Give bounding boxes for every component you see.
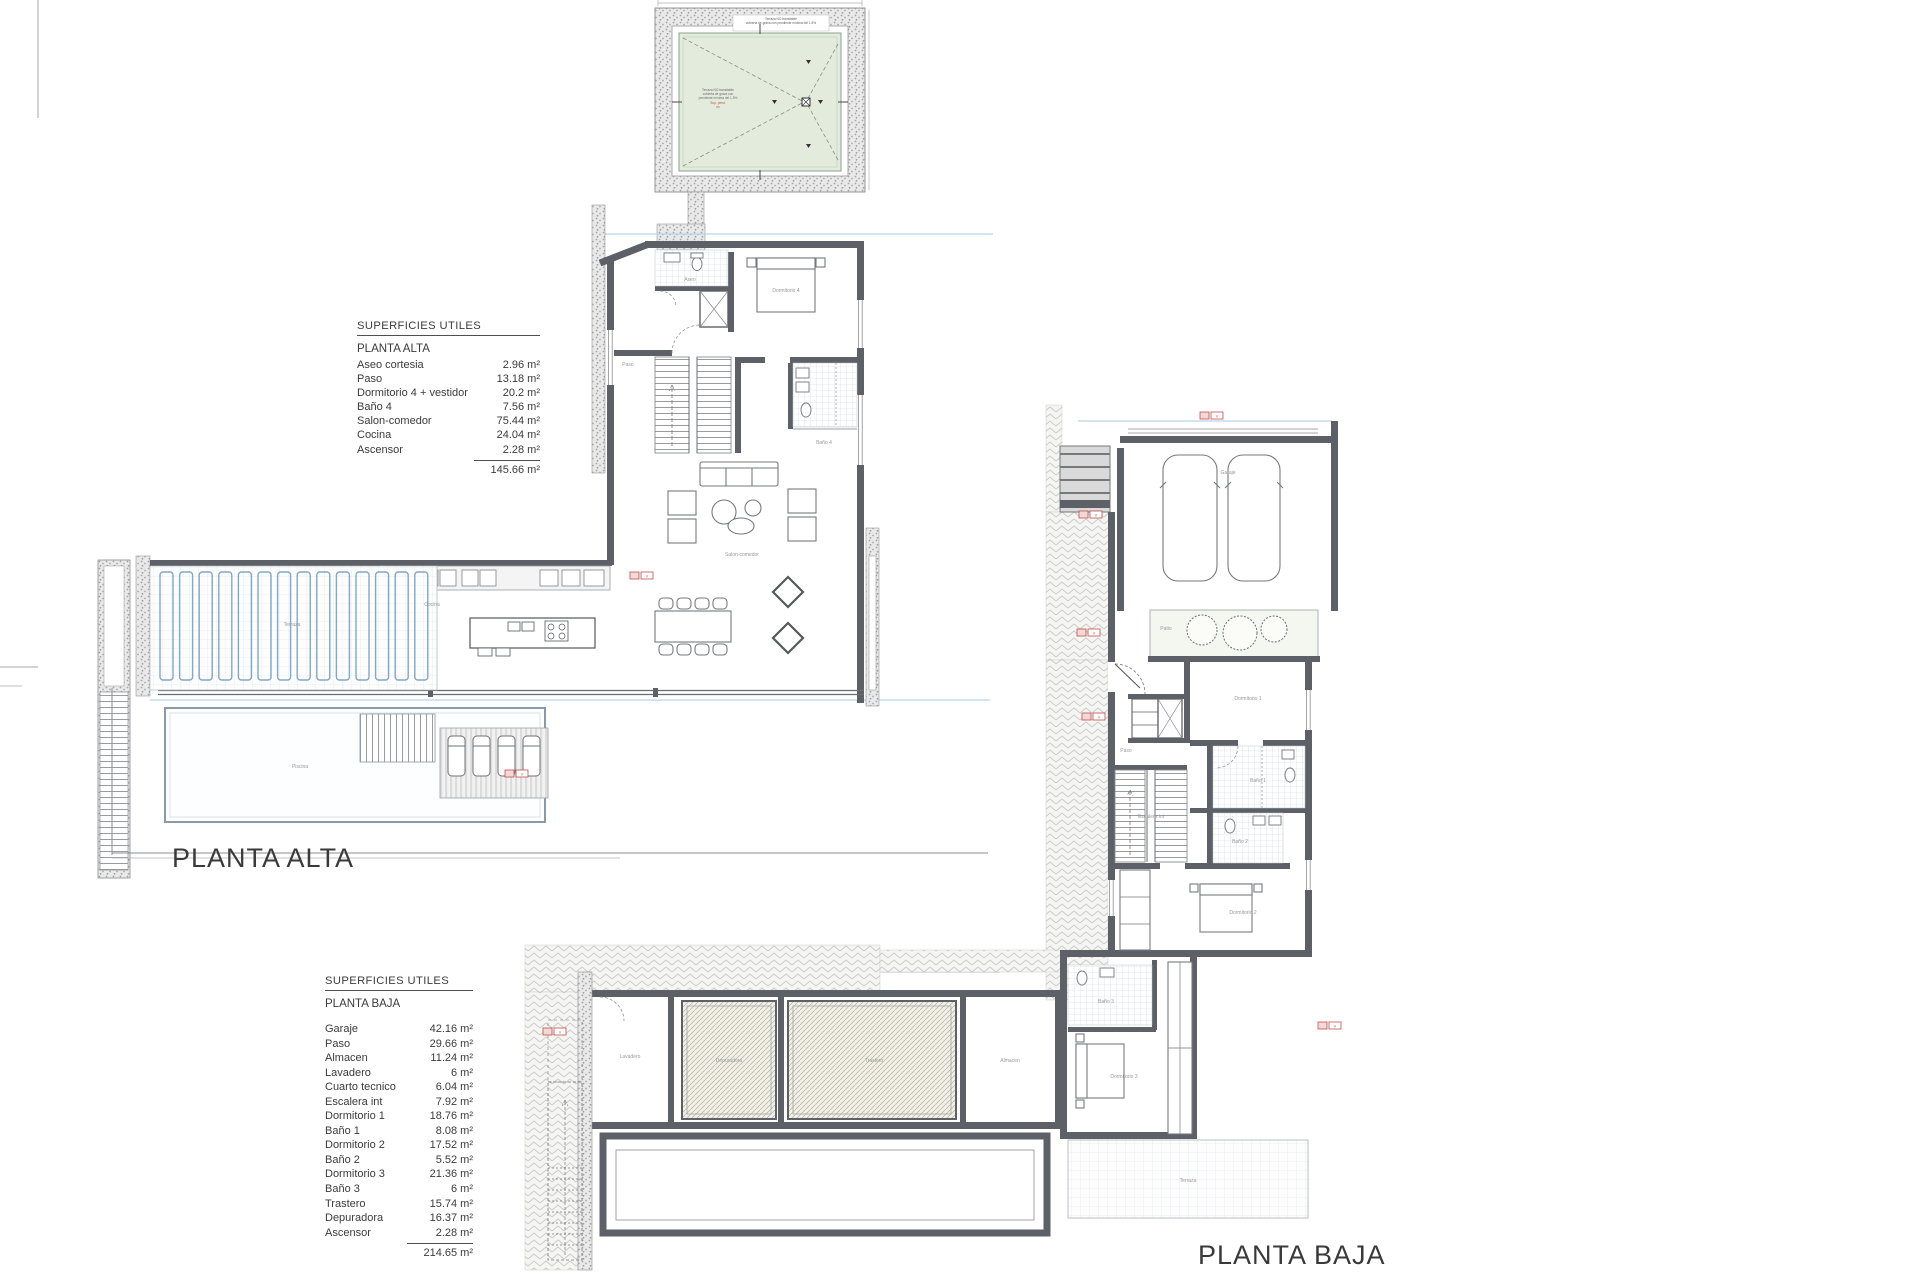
roof-center-note: Terraza NO transitable cubierta de grava… [695,88,741,109]
row-label: Cocina [357,428,391,442]
window-tag-text: V [646,573,649,578]
room-label: Terraza [284,622,301,628]
row-label: Garaje [325,1022,358,1037]
exterior-stair [100,692,128,870]
toilet [692,258,702,271]
tree [1187,615,1217,645]
row-label: Ascensor [357,443,403,457]
row-value: 24.04 m² [497,428,540,442]
table-row: Trastero15.74 m² [325,1197,473,1212]
row-label: Escalera int [325,1095,382,1110]
room-label: Dormitorio 3 [1110,1074,1137,1080]
door-arc [600,997,624,1021]
window-tag: V [630,572,653,579]
row-label: Baño 1 [325,1124,360,1139]
plan-title-baja: PLANTA BAJA [1198,1240,1386,1271]
table-row: Baño 25.52 m² [325,1153,473,1168]
row-value: 18.76 m² [430,1109,473,1124]
table-row: Dormitorio 321.36 m² [325,1167,473,1182]
row-value: 6 m² [451,1182,473,1197]
room-label: Depuradora [716,1058,743,1064]
patio-jardin [1148,610,1320,662]
surfaces-table-alta: SUPERFICIES UTILES PLANTA ALTA Aseo cort… [357,320,540,476]
armchair [788,489,816,513]
table-row: Cuarto tecnico6.04 m² [325,1080,473,1095]
wardrobe [1120,870,1150,950]
plan-baja [525,405,1338,1270]
row-value: 20.2 m² [503,386,540,400]
table-rows: Garaje42.16 m²Paso29.66 m²Almacen11.24 m… [325,1022,473,1240]
table-floor-title: PLANTA ALTA [357,343,540,355]
window-tag: V [543,1028,566,1035]
row-label: Dormitorio 3 [325,1167,385,1182]
room-label: Dormitorio 1 [1234,696,1261,702]
row-value: 7.92 m² [436,1095,473,1110]
room-label: Trastero [865,1058,884,1064]
row-value: 75.44 m² [497,414,540,428]
banio4 [793,363,857,429]
armchair [668,491,696,515]
toilet [801,403,811,417]
page-frame-marks [0,0,38,686]
row-label: Depuradora [325,1211,383,1226]
row-value: 21.36 m² [430,1167,473,1182]
row-label: Almacen [325,1051,368,1066]
table-row: Baño 36 m² [325,1182,473,1197]
table-row: Baño 18.08 m² [325,1124,473,1139]
row-value: 7.56 m² [503,400,540,414]
row-value: 42.16 m² [430,1022,473,1037]
door-arc [660,291,676,307]
diagonal-wall [600,244,649,263]
room-label: Baño 3 [1098,999,1114,1005]
row-label: Aseo cortesia [357,358,424,372]
table-row: Garaje42.16 m² [325,1022,473,1037]
row-label: Dormitorio 2 [325,1138,385,1153]
room-label: Paso [1120,748,1132,754]
row-label: Salon-comedor [357,414,432,428]
armchair [788,517,816,541]
sink [664,253,680,262]
window-tag: V [1077,629,1100,636]
car [1228,455,1280,581]
pool-area [112,688,988,858]
roof-top-note: Terraza NO transitable cubierta de grava… [733,17,829,25]
row-value: 6.04 m² [436,1080,473,1095]
table-row: Ascensor2.28 m² [357,443,540,457]
table-row: Aseo cortesia2.96 m² [357,358,540,372]
table-row: Baño 47.56 m² [357,400,540,414]
roof-top-note-line2: cubierta de grava con pendiente mínima d… [733,21,829,25]
room-label: Aseo [684,277,696,283]
room-label: Garaje [1220,470,1235,476]
table-header: SUPERFICIES UTILES [357,320,540,336]
tree [1223,616,1257,650]
sofa [700,462,778,486]
sink [1100,968,1114,977]
sink [508,622,520,631]
room-label: Almacen [1000,1058,1020,1064]
glass-wall [158,691,864,695]
row-value: 17.52 m² [430,1138,473,1153]
table-total-value: 214.65 m² [407,1243,473,1259]
window-tag: V [1318,1022,1341,1029]
roof-detail [655,0,869,250]
sink [1269,816,1281,825]
coffee-table [728,518,754,534]
table-row: Escalera int7.92 m² [325,1095,473,1110]
row-value: 2.96 m² [503,358,540,372]
window-tag: V [1079,511,1102,518]
kitchen-island [470,618,595,656]
window-tag: V [505,770,528,777]
row-label: Dormitorio 1 [325,1109,385,1124]
pool-steps [360,714,435,762]
sink [1253,816,1265,825]
exterior-wall-hatch [578,972,592,1270]
row-value: 2.28 m² [503,443,540,457]
banio1 [1213,746,1305,808]
dining-set [655,598,731,655]
table-header: SUPERFICIES UTILES [325,975,473,991]
row-value: 2.28 m² [436,1226,473,1241]
table-row: Dormitorio 217.52 m² [325,1138,473,1153]
car [1163,455,1217,581]
room-label: Escalera int [1138,814,1165,820]
room-label: Paso [622,362,634,368]
roof-red-note: m² [695,105,741,109]
window-tag-text: V [1093,630,1096,635]
table-total: 214.65 m² [325,1243,473,1259]
room-label: Patio [1160,626,1172,632]
stairwell-alta [655,357,731,453]
window-tag-text: V [521,771,524,776]
tree [1261,616,1287,642]
banio3 [1068,965,1152,1025]
window-tag-text: V [1095,512,1098,517]
table-row: Cocina24.04 m² [357,428,540,442]
terrace-louvers-area [150,566,437,690]
surfaces-table-baja: SUPERFICIES UTILES PLANTA BAJA Garaje42.… [325,975,473,1259]
table-row: Dormitorio 4 + vestidor20.2 m² [357,386,540,400]
door-arc [672,325,700,353]
roof-connector [688,192,704,228]
window-tag-text: V [1216,413,1219,418]
exterior-wall-hatch [592,205,605,473]
row-label: Lavadero [325,1066,371,1081]
room-label: Lavadero [620,1054,641,1060]
pool-basin-strip [603,1136,1047,1233]
row-label: Trastero [325,1197,366,1212]
toilet [1285,768,1295,782]
room-label: Piscina [292,764,308,770]
row-value: 6 m² [451,1066,473,1081]
row-value: 5.52 m² [436,1153,473,1168]
table-row: Depuradora16.37 m² [325,1211,473,1226]
sink [522,622,534,631]
roof-center-line: pendiente mínima del 1.5% [695,96,741,100]
row-label: Paso [357,372,382,386]
sink [796,382,809,392]
banio2 [1213,813,1283,863]
row-label: Cuarto tecnico [325,1080,396,1095]
row-value: 29.66 m² [430,1037,473,1052]
table-rows: Aseo cortesia2.96 m²Paso13.18 m²Dormitor… [357,358,540,457]
entry-door [1108,662,1145,694]
table-row: Salon-comedor75.44 m² [357,414,540,428]
elevator-baja [1158,699,1182,738]
room-label: Salon-comedor [725,552,759,558]
row-label: Baño 3 [325,1182,360,1197]
room-label: Dormitorio 4 [772,288,799,294]
table-row: Almacen11.24 m² [325,1051,473,1066]
room-label: Cocina [424,602,440,608]
window-tag: V [1082,713,1105,720]
row-value: 8.08 m² [436,1124,473,1139]
row-label: Dormitorio 4 + vestidor [357,386,468,400]
row-label: Baño 4 [357,400,392,414]
row-value: 15.74 m² [430,1197,473,1212]
storage-closet [1132,699,1158,738]
table-floor-title: PLANTA BAJA [325,998,473,1010]
row-value: 16.37 m² [430,1211,473,1226]
window-tag-text: V [559,1029,562,1034]
bed-dormitorio4 [747,258,825,312]
room-label: Dormitorio 2 [1229,910,1256,916]
table-row: Lavadero6 m² [325,1066,473,1081]
table-total: 145.66 m² [357,460,540,476]
exterior-wall-hatch [136,556,150,696]
row-label: Baño 2 [325,1153,360,1168]
row-value: 11.24 m² [430,1051,473,1066]
window-tag: V [1200,412,1223,419]
table-row: Ascensor2.28 m² [325,1226,473,1241]
plan-title-alta: PLANTA ALTA [172,843,354,874]
window-tag-text: V [1098,714,1101,719]
lounge-chair [773,577,803,607]
floor-plan-drawing: AseoDormitorio 4PasoBaño 4Salon-comedorC… [0,0,1920,1280]
room-label: Baño 1 [1250,778,1266,784]
sink [1282,750,1294,759]
row-label: Ascensor [325,1226,371,1241]
toilet [1077,971,1087,985]
room-label: Terraza [1180,1178,1197,1184]
row-label: Paso [325,1037,350,1052]
table-row: Paso13.18 m² [357,372,540,386]
dining-table [655,611,731,642]
plan-alta [98,205,988,878]
lounge-chair [773,623,803,653]
armchair [668,519,696,543]
room-label: Baño 2 [1232,839,1248,845]
coffee-table [745,500,761,516]
table-row: Dormitorio 118.76 m² [325,1109,473,1124]
row-value: 13.18 m² [497,372,540,386]
sink [796,368,809,378]
elevator-alta [700,291,728,327]
window-tag-text: V [1334,1023,1337,1028]
garage [1117,421,1338,611]
room-label: Baño 4 [816,440,832,446]
sheet: AseoDormitorio 4PasoBaño 4Salon-comedorC… [0,0,1920,1280]
toilet [1225,819,1235,833]
table-total-value: 145.66 m² [474,460,540,476]
table-row: Paso29.66 m² [325,1037,473,1052]
